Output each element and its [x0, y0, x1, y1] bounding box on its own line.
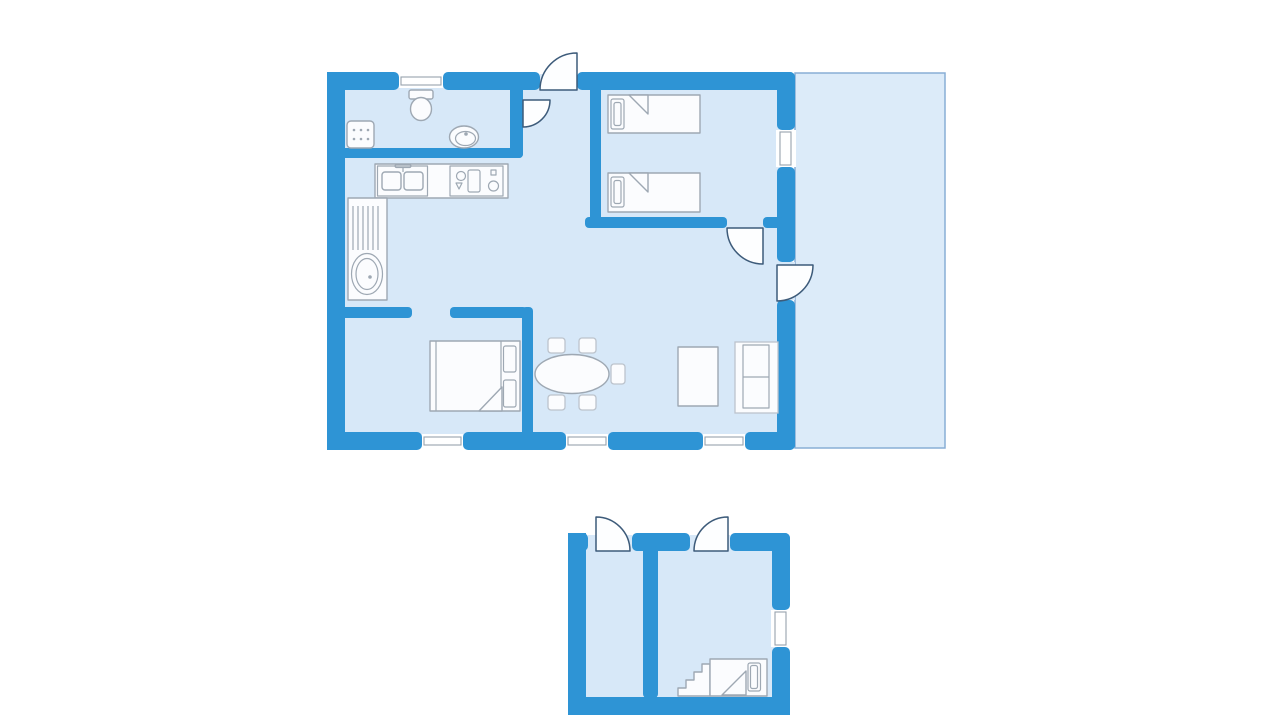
outbuilding-wall-right — [772, 647, 790, 715]
wall-bottom — [463, 432, 566, 450]
wall-bedroom1-south — [763, 217, 783, 228]
sofa — [735, 342, 778, 413]
wall-bedroom2-north — [450, 307, 527, 318]
storage-door — [596, 517, 630, 551]
main-house — [327, 53, 945, 450]
dining-chair — [579, 338, 596, 353]
window-bunk-room — [771, 610, 791, 647]
wall-bedroom1-south — [585, 217, 727, 228]
wall-right — [777, 300, 795, 450]
wall-bathroom-south — [338, 148, 523, 158]
wall-right — [777, 167, 795, 262]
toilet — [409, 90, 433, 121]
wall-left — [327, 72, 345, 450]
coffee-table — [678, 347, 718, 406]
wall-bedroom1-west — [590, 84, 601, 228]
terrace — [795, 73, 945, 448]
entrance-door — [540, 53, 577, 90]
dining-chair — [579, 395, 596, 410]
outbuilding-wall-top — [632, 533, 690, 551]
wall-top — [577, 72, 795, 90]
wall-bottom — [608, 432, 703, 450]
wall-top — [443, 72, 540, 90]
outbuilding-wall-left — [568, 533, 586, 715]
wall-right — [777, 72, 795, 130]
window-living-2 — [703, 434, 745, 448]
dining-table — [535, 355, 609, 394]
double-bed — [430, 341, 520, 411]
outbuilding-wall-bottom — [568, 697, 790, 715]
bunk-room-door — [694, 517, 728, 551]
outbuilding-wall-right — [772, 533, 790, 610]
dining-chair — [611, 364, 625, 384]
window-bathroom — [399, 74, 443, 88]
wall-bedroom2-east — [522, 307, 533, 438]
wall-bathroom-east — [510, 84, 523, 158]
floor-plan — [0, 0, 1280, 720]
single-bed-1 — [608, 95, 700, 133]
window-bedroom1 — [776, 130, 796, 167]
dining-chair — [548, 338, 565, 353]
worktop — [348, 198, 387, 300]
bedroom-2 — [430, 341, 520, 411]
wall-bedroom2-north — [339, 307, 412, 318]
window-bedroom2 — [422, 434, 463, 448]
window-living-1 — [566, 434, 608, 448]
single-bed-2 — [608, 173, 700, 212]
hand-basin — [450, 126, 479, 148]
outbuilding-wall-divider — [643, 546, 658, 698]
outbuilding — [568, 517, 791, 715]
dining-chair — [548, 395, 565, 410]
washing-machine — [347, 121, 374, 148]
